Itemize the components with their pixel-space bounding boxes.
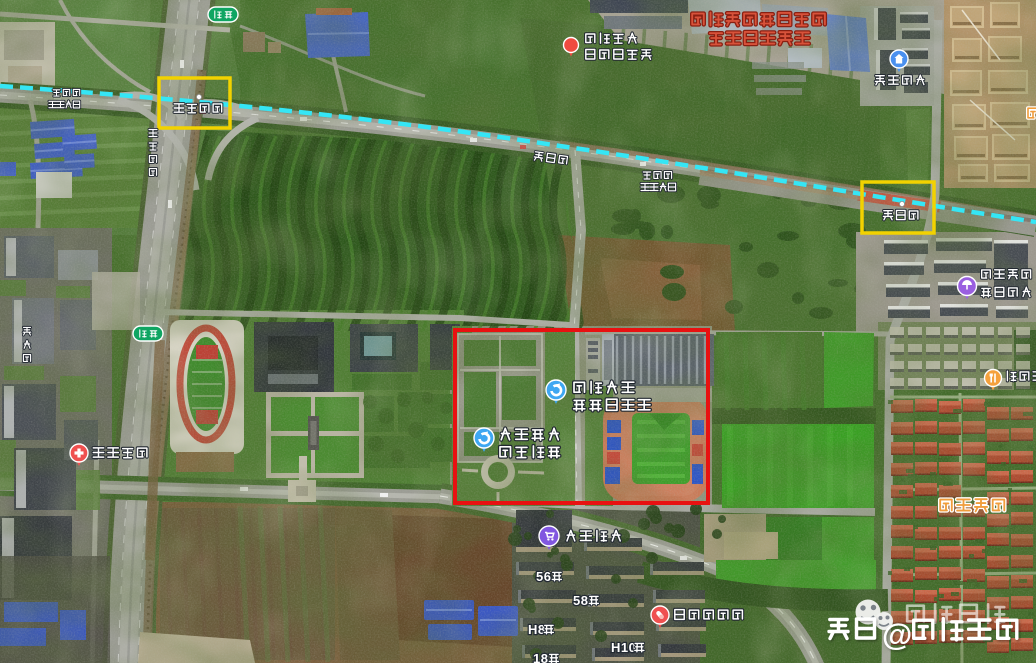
svg-text:56: 56 [536, 569, 551, 584]
svg-text:58: 58 [573, 593, 588, 608]
svg-text:H8: H8 [528, 622, 546, 637]
svg-text:H10: H10 [611, 640, 636, 655]
svg-text:@: @ [882, 617, 912, 652]
svg-text:18: 18 [533, 651, 548, 663]
